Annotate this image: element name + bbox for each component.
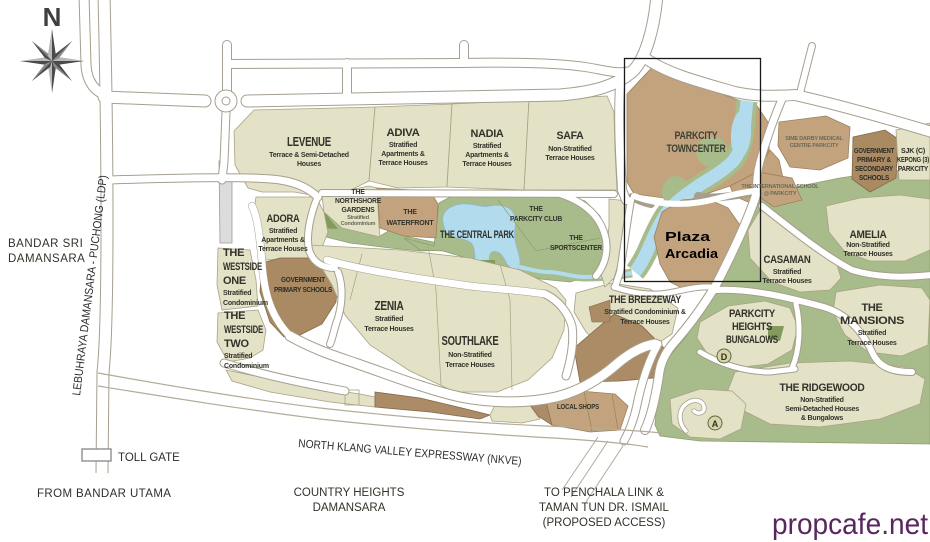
svg-text:TOLL GATE: TOLL GATE [118, 452, 180, 464]
svg-text:SECONDARY: SECONDARY [855, 166, 893, 173]
svg-text:THE: THE [224, 310, 245, 322]
svg-text:GARDENS: GARDENS [342, 207, 376, 214]
svg-text:Terrace & Semi-Detached: Terrace & Semi-Detached [269, 152, 349, 159]
svg-text:THE: THE [403, 209, 417, 216]
svg-text:Stratified: Stratified [269, 228, 297, 235]
svg-text:Condominium: Condominium [341, 221, 376, 227]
svg-text:Terrace Houses: Terrace Houses [847, 340, 897, 347]
svg-text:Condominium: Condominium [224, 363, 269, 370]
svg-text:GOVERNMENT: GOVERNMENT [854, 148, 895, 155]
svg-text:AMELIA: AMELIA [850, 229, 887, 241]
svg-text:LOCAL SHOPS: LOCAL SHOPS [557, 404, 599, 411]
svg-text:Terrace Houses: Terrace Houses [378, 160, 428, 167]
svg-text:Stratified: Stratified [223, 290, 251, 297]
svg-text:Terrace Houses: Terrace Houses [762, 278, 812, 285]
svg-text:Terrace Houses: Terrace Houses [545, 155, 595, 162]
svg-text:THE CENTRAL PARK: THE CENTRAL PARK [440, 229, 514, 241]
svg-text:propcafe.net: propcafe.net [772, 508, 929, 541]
svg-text:DAMANSARA: DAMANSARA [8, 253, 85, 265]
svg-text:COUNTRY HEIGHTS: COUNTRY HEIGHTS [294, 487, 405, 499]
svg-text:THE: THE [861, 302, 882, 314]
svg-text:PRIMARY &: PRIMARY & [857, 157, 891, 164]
svg-text:FROM BANDAR UTAMA: FROM BANDAR UTAMA [37, 488, 171, 500]
svg-text:TO PENCHALA LINK &: TO PENCHALA LINK & [544, 487, 664, 499]
svg-text:Terrace Houses: Terrace Houses [620, 319, 670, 326]
svg-text:MANSIONS: MANSIONS [840, 315, 904, 327]
svg-text:LEVENUE: LEVENUE [287, 135, 331, 149]
svg-text:HEIGHTS: HEIGHTS [732, 321, 772, 333]
svg-text:Non-Stratified: Non-Stratified [448, 352, 491, 359]
svg-text:THE: THE [223, 247, 244, 259]
svg-text:SCHOOLS: SCHOOLS [859, 175, 889, 182]
svg-text:N: N [43, 2, 62, 32]
svg-text:Houses: Houses [297, 161, 321, 168]
svg-text:THE RIDGEWOOD: THE RIDGEWOOD [780, 382, 865, 394]
svg-text:ADIVA: ADIVA [387, 127, 420, 139]
svg-text:Terrace Houses: Terrace Houses [843, 251, 893, 258]
svg-text:Stratified: Stratified [473, 143, 501, 150]
svg-text:PARKCITY: PARKCITY [898, 166, 928, 173]
svg-text:TWO: TWO [224, 338, 250, 350]
svg-text:PARKCITY: PARKCITY [729, 308, 776, 320]
svg-text:CENTRE PARKCITY: CENTRE PARKCITY [790, 143, 839, 149]
svg-text:GOVERNMENT: GOVERNMENT [281, 277, 326, 284]
svg-text:PRIMARY SCHOOLS: PRIMARY SCHOOLS [274, 287, 332, 294]
svg-text:Non-Stratified: Non-Stratified [846, 242, 889, 249]
svg-text:Apartments &: Apartments & [381, 151, 425, 158]
svg-text:A: A [712, 419, 719, 429]
svg-text:@ PARKCITY: @ PARKCITY [764, 191, 797, 197]
svg-text:D: D [721, 352, 728, 362]
svg-text:Stratified: Stratified [389, 142, 417, 149]
svg-text:SAFA: SAFA [557, 130, 584, 142]
svg-text:Terrace Houses: Terrace Houses [258, 246, 308, 253]
svg-text:Terrace Houses: Terrace Houses [445, 362, 495, 369]
svg-text:ZENIA: ZENIA [375, 299, 404, 313]
svg-text:Stratified: Stratified [224, 353, 252, 360]
svg-text:KEPONG (3): KEPONG (3) [897, 157, 929, 164]
svg-text:THE BREEZEWAY: THE BREEZEWAY [609, 294, 682, 306]
svg-text:WESTSIDE: WESTSIDE [224, 324, 263, 336]
svg-text:WESTSIDE: WESTSIDE [223, 261, 262, 273]
svg-text:WATERFRONT: WATERFRONT [387, 220, 435, 227]
svg-text:SOUTHLAKE: SOUTHLAKE [442, 334, 499, 348]
svg-text:Non-Stratified: Non-Stratified [800, 397, 843, 404]
svg-text:SIME DARBY MEDICAL: SIME DARBY MEDICAL [785, 136, 843, 142]
svg-text:SPORTSCENTER: SPORTSCENTER [550, 245, 602, 252]
svg-text:SJK (C): SJK (C) [901, 148, 925, 155]
svg-text:THE: THE [529, 206, 543, 213]
svg-text:Condominium: Condominium [223, 300, 268, 307]
svg-text:Terrace Houses: Terrace Houses [462, 161, 512, 168]
svg-text:THE INTERNATIONAL SCHOOL: THE INTERNATIONAL SCHOOL [741, 184, 819, 190]
svg-text:Stratified: Stratified [858, 330, 886, 337]
svg-text:ADORA: ADORA [267, 213, 300, 225]
svg-text:PARKCITY CLUB: PARKCITY CLUB [510, 216, 562, 223]
svg-text:Stratified: Stratified [375, 316, 403, 323]
svg-text:(PROPOSED ACCESS): (PROPOSED ACCESS) [543, 517, 666, 529]
svg-text:BANDAR SRI: BANDAR SRI [8, 238, 83, 250]
svg-text:CASAMAN: CASAMAN [764, 254, 811, 266]
svg-text:Plaza: Plaza [665, 229, 711, 244]
svg-text:Stratified Condominium &: Stratified Condominium & [604, 309, 686, 316]
svg-text:Semi-Detached Houses: Semi-Detached Houses [785, 406, 859, 413]
svg-text:PARKCITY: PARKCITY [675, 130, 719, 142]
svg-text:NORTHSHORE: NORTHSHORE [335, 198, 382, 205]
svg-text:NADIA: NADIA [471, 128, 504, 140]
svg-text:TOWNCENTER: TOWNCENTER [667, 143, 726, 155]
svg-text:Arcadia: Arcadia [665, 246, 719, 261]
svg-text:TAMAN TUN DR. ISMAIL: TAMAN TUN DR. ISMAIL [539, 502, 670, 514]
svg-text:& Bungalows: & Bungalows [801, 415, 843, 422]
svg-text:Apartments &: Apartments & [465, 152, 509, 159]
svg-text:BUNGALOWS: BUNGALOWS [726, 334, 778, 346]
svg-text:ONE: ONE [223, 275, 246, 287]
svg-text:THE: THE [351, 189, 365, 196]
svg-text:Apartments &: Apartments & [261, 237, 305, 244]
svg-text:Non-Stratified: Non-Stratified [548, 146, 591, 153]
svg-text:Terrace Houses: Terrace Houses [364, 326, 414, 333]
svg-text:DAMANSARA: DAMANSARA [313, 502, 386, 514]
svg-text:THE: THE [569, 235, 583, 242]
svg-text:Stratified: Stratified [773, 269, 801, 276]
